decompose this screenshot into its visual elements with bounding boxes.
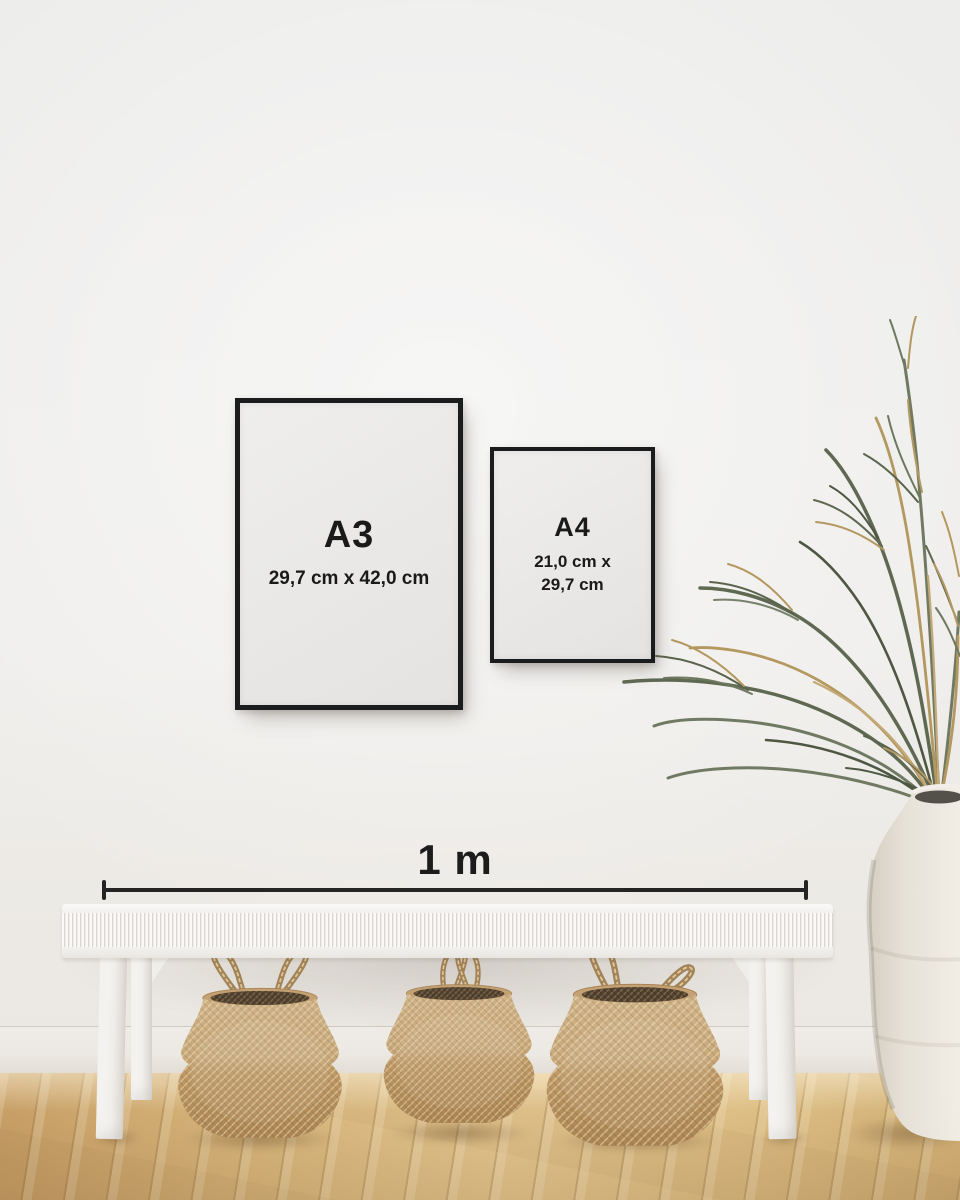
frame-a4-label: A4 <box>554 514 591 541</box>
scale-tick-left <box>102 880 106 900</box>
vase-body-group <box>869 786 960 1141</box>
frame-a3-dimensions: 29,7 cm x 42,0 cm <box>269 566 430 592</box>
frame-a3: A3 29,7 cm x 42,0 cm <box>235 398 463 710</box>
scale-tick-right <box>804 880 808 900</box>
basket-body-group <box>384 985 535 1123</box>
scale-label: 1 m <box>102 836 808 884</box>
frame-a4-dimensions-line1: 21,0 cm x <box>534 551 611 574</box>
bench-leg-front-right <box>765 953 796 1139</box>
plant-fronds <box>624 360 959 804</box>
frame-a3-paper: A3 29,7 cm x 42,0 cm <box>240 403 458 705</box>
basket-body-group <box>547 984 724 1146</box>
room-scene: A3 29,7 cm x 42,0 cm A4 21,0 cm x 29,7 c… <box>0 0 960 1200</box>
basket-body-group <box>178 988 342 1137</box>
one-meter-scale: 1 m <box>102 836 808 902</box>
frame-a3-label: A3 <box>324 516 375 554</box>
ceramic-vase <box>862 782 960 1154</box>
bench-leg-front-left <box>96 953 128 1140</box>
frame-a4-dimensions: 21,0 cm x 29,7 cm <box>534 551 611 597</box>
frame-a4-dimensions-line2: 29,7 cm <box>534 574 611 597</box>
frame-a4-paper: A4 21,0 cm x 29,7 cm <box>494 451 651 659</box>
scale-line <box>102 888 808 892</box>
seagrass-basket-2 <box>378 940 540 1135</box>
seagrass-basket-3 <box>540 932 730 1160</box>
plant-leaf-blades <box>656 316 960 794</box>
bench-leg-back-left <box>131 953 152 1100</box>
frame-a4: A4 21,0 cm x 29,7 cm <box>490 447 655 663</box>
bench-seat <box>62 904 833 958</box>
seagrass-basket-1 <box>172 940 348 1151</box>
